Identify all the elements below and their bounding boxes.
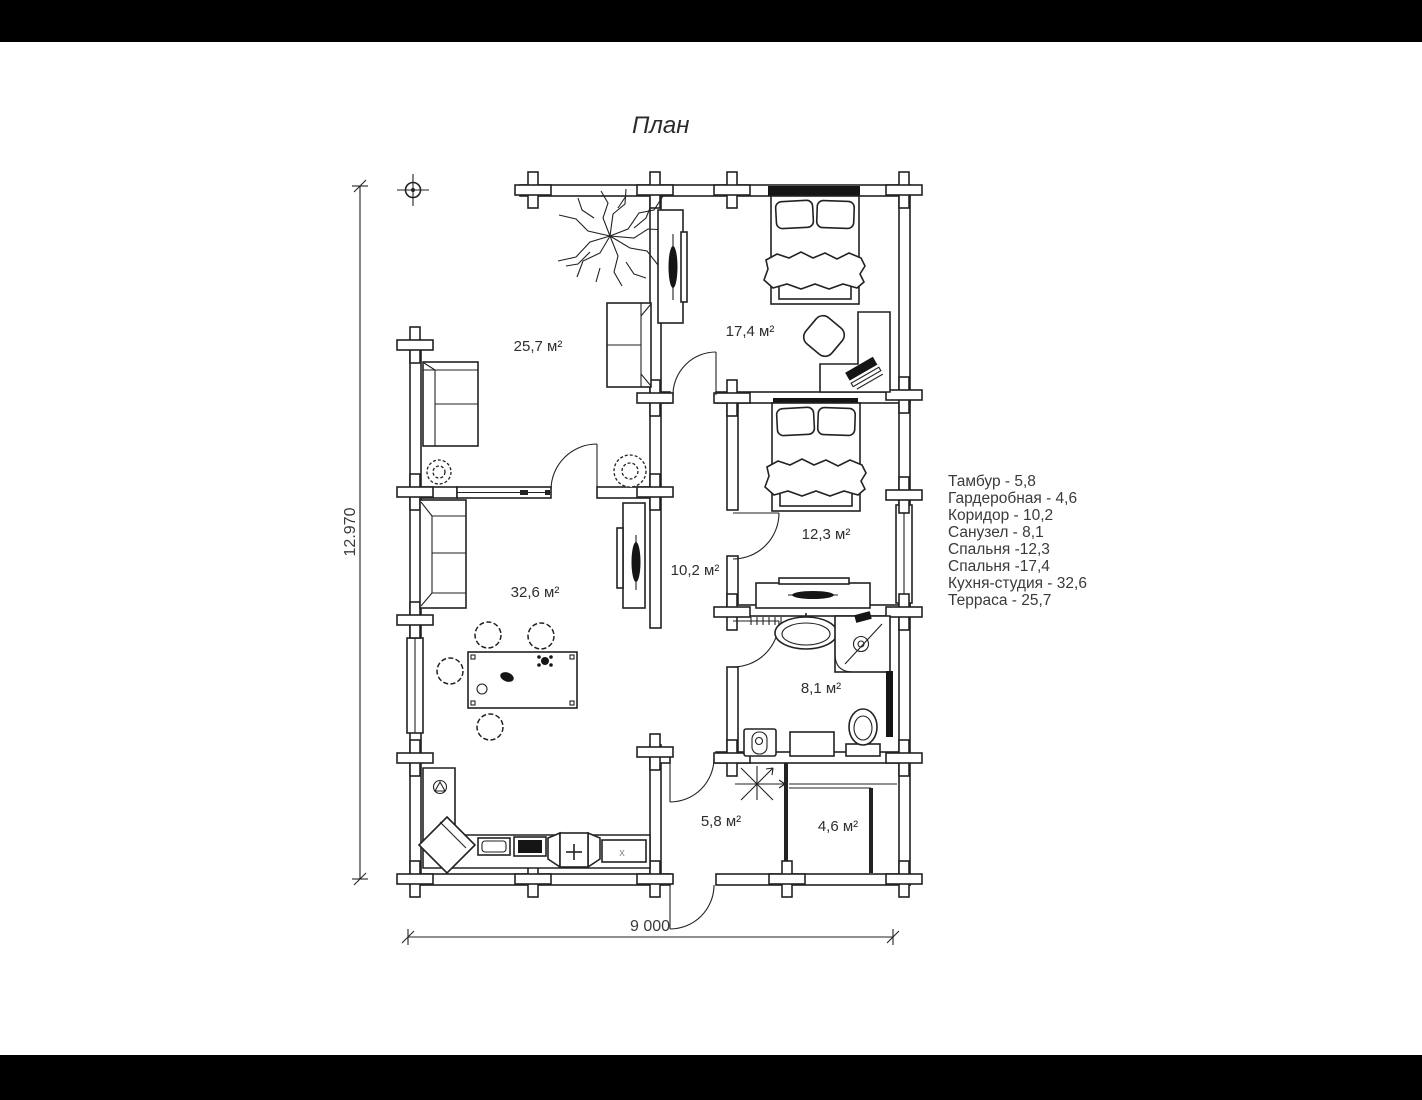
page-title: План: [632, 112, 689, 139]
screenshot-stage: План: [0, 0, 1422, 1100]
chair: [528, 623, 554, 649]
room-area-label-bathroom: 8,1 м²: [801, 680, 841, 697]
door-bedroom-small: [733, 513, 779, 559]
bedroom-large: [658, 196, 890, 392]
appliance-x: x: [602, 840, 646, 862]
room-area-label-terrace: 25,7 м²: [514, 338, 563, 355]
legend-item: Спальня -17,4: [948, 558, 1050, 575]
hob-basin: [548, 833, 600, 867]
toilet: [846, 709, 880, 756]
tv-cabinet: [658, 210, 687, 323]
room-area-label-bedroom-small: 12,3 м²: [802, 526, 851, 543]
washing-machine: [744, 729, 776, 756]
door-bedroom-large: [673, 352, 716, 395]
room-area-label-wardrobe: 4,6 м²: [818, 818, 858, 835]
window-band-bedroom-large: [768, 186, 860, 196]
terrace-sofa-left: [423, 362, 478, 446]
dining-table: [468, 652, 577, 708]
tambour: [735, 766, 785, 800]
north-symbol: [397, 174, 429, 206]
bedroom-small: [756, 403, 870, 608]
kitchen-counter: x: [419, 768, 650, 873]
kitchen-studio: x: [419, 500, 650, 873]
window-kitchen-left: [407, 638, 423, 733]
chair: [437, 658, 463, 684]
terrace-sofa-right: [607, 303, 651, 387]
window-bedroom-right: [896, 505, 912, 603]
towel-rail: [886, 671, 893, 737]
door-terrace: [551, 444, 597, 490]
stove: [514, 837, 546, 856]
kitchen-sofa: [420, 500, 466, 608]
svg-text:x: x: [619, 847, 625, 859]
kitchen-sink-unit: [478, 838, 510, 855]
legend-item: Спальня -12,3: [948, 541, 1050, 558]
door-entrance: [670, 885, 714, 929]
room-area-label-kitchen-studio: 32,6 м²: [511, 584, 560, 601]
bath-cabinet: [790, 732, 834, 756]
legend: Тамбур - 5,8 Гардеробная - 4,6 Коридор -…: [948, 473, 1087, 609]
room-area-label-bedroom-large: 17,4 м²: [726, 323, 775, 340]
legend-item: Тамбур - 5,8: [948, 473, 1036, 490]
shower-cabin: [835, 611, 890, 672]
dimension-width: 9 000: [402, 918, 899, 945]
legend-item: Коридор - 10,2: [948, 507, 1053, 524]
living-tv-cabinet: [617, 503, 645, 608]
fan-symbol: [735, 766, 785, 800]
dresser-tv: [756, 578, 870, 608]
terrace-plant-pot: [427, 460, 451, 484]
wash-basin: [775, 613, 837, 649]
room-area-label-tambour: 5,8 м²: [701, 813, 741, 830]
bed: [765, 403, 866, 511]
desk-chair: [800, 312, 848, 360]
chair: [477, 714, 503, 740]
dimension-width-label: 9 000: [630, 918, 670, 935]
tambour-wardrobe-partition: [784, 763, 788, 874]
chair: [475, 622, 501, 648]
legend-item: Гардеробная - 4,6: [948, 490, 1077, 507]
table-decor-flower: [541, 657, 549, 665]
dimension-height-label: 12.970: [342, 507, 359, 556]
door-tambour: [670, 758, 714, 802]
letterbox-top: [0, 0, 1422, 42]
bed: [764, 196, 865, 304]
window-terrace-divider: [457, 487, 551, 498]
wreath-plant: [614, 455, 646, 487]
room-area-label-corridor: 10,2 м²: [671, 562, 720, 579]
legend-item: Кухня-студия - 32,6: [948, 575, 1087, 592]
dimension-height: 12.970: [342, 180, 368, 885]
legend-item: Санузел - 8,1: [948, 524, 1044, 541]
letterbox-bottom: [0, 1055, 1422, 1100]
door-bathroom: [733, 621, 779, 667]
floor-plan-canvas: План: [0, 0, 1422, 1100]
desk: [800, 312, 890, 392]
legend-item: Терраса - 25,7: [948, 592, 1051, 609]
